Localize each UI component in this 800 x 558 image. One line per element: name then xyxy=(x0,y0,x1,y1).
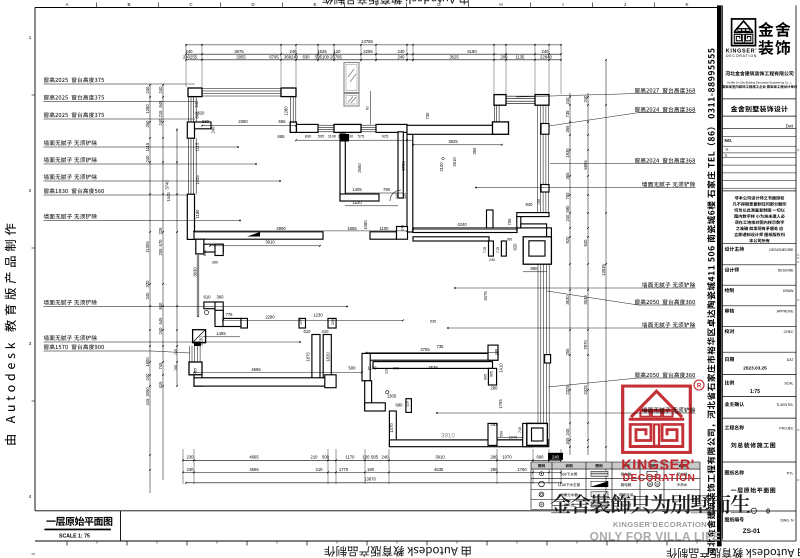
svg-text:Ho.Bei Jin She Building Decora: Ho.Bei Jin She Building Decoration Engin… xyxy=(727,80,792,84)
svg-text:1280: 1280 xyxy=(284,106,289,116)
svg-text:SCAL: SCAL xyxy=(784,382,793,386)
svg-text:13535: 13535 xyxy=(601,264,606,276)
svg-text:260: 260 xyxy=(145,120,150,128)
svg-text:100: 100 xyxy=(363,455,371,460)
svg-text:565: 565 xyxy=(371,455,379,460)
svg-text:20795: 20795 xyxy=(330,55,342,60)
svg-text:210: 210 xyxy=(311,455,319,460)
svg-text:230: 230 xyxy=(187,467,195,472)
svg-text:240: 240 xyxy=(583,95,588,103)
svg-text:TITL: TITL xyxy=(786,471,793,475)
svg-text:2660: 2660 xyxy=(357,163,362,173)
svg-text:1115: 1115 xyxy=(145,142,150,151)
svg-text:120: 120 xyxy=(406,401,410,407)
svg-text:1305: 1305 xyxy=(387,393,397,398)
svg-text:790: 790 xyxy=(383,187,391,192)
svg-text:240: 240 xyxy=(495,349,499,355)
svg-text:SCALE 1: 75: SCALE 1: 75 xyxy=(59,534,90,540)
svg-text:3625: 3625 xyxy=(449,55,459,60)
svg-text:845: 845 xyxy=(158,100,163,108)
svg-text:1855: 1855 xyxy=(347,226,357,231)
svg-text:1:75: 1:75 xyxy=(750,389,760,395)
svg-text:240: 240 xyxy=(552,454,560,459)
svg-text:3630: 3630 xyxy=(565,295,570,305)
svg-text:5180: 5180 xyxy=(467,49,477,54)
svg-text:13755: 13755 xyxy=(361,39,373,44)
svg-text:1525: 1525 xyxy=(317,49,327,54)
svg-text:245: 245 xyxy=(565,428,570,436)
svg-text:K: K xyxy=(685,2,688,7)
svg-text:1170: 1170 xyxy=(345,455,355,460)
svg-text:645: 645 xyxy=(158,317,163,325)
svg-text:240: 240 xyxy=(489,258,495,262)
svg-text:240: 240 xyxy=(145,155,150,163)
svg-text:11305: 11305 xyxy=(145,241,150,253)
svg-text:1765: 1765 xyxy=(498,399,503,409)
svg-text:1820: 1820 xyxy=(326,352,331,362)
svg-text:3675: 3675 xyxy=(234,49,244,54)
svg-text:2060: 2060 xyxy=(145,387,150,397)
svg-text:930: 930 xyxy=(507,237,513,241)
svg-text:750: 750 xyxy=(537,199,541,205)
svg-text:1935: 1935 xyxy=(565,148,570,158)
svg-text:765: 765 xyxy=(174,365,178,371)
svg-text:100: 100 xyxy=(393,367,399,371)
svg-text:1410: 1410 xyxy=(499,363,504,373)
svg-text:610: 610 xyxy=(304,329,312,334)
svg-text:610: 610 xyxy=(203,250,207,256)
svg-text:4240: 4240 xyxy=(457,222,467,227)
svg-text:240: 240 xyxy=(158,86,163,94)
svg-text:500: 500 xyxy=(349,366,357,371)
svg-text:255: 255 xyxy=(565,348,570,356)
svg-text:225: 225 xyxy=(158,227,163,235)
svg-text:365: 365 xyxy=(565,125,570,133)
svg-text:ZS-01: ZS-01 xyxy=(743,528,761,535)
svg-text:4665: 4665 xyxy=(251,367,261,372)
svg-text:655: 655 xyxy=(278,134,286,139)
svg-text:2325: 2325 xyxy=(583,385,588,395)
svg-text:920: 920 xyxy=(583,239,588,247)
svg-text:JL: JL xyxy=(725,148,729,152)
svg-text:205: 205 xyxy=(158,248,163,256)
svg-text:DRAW: DRAW xyxy=(783,289,794,293)
svg-text:850: 850 xyxy=(531,266,539,271)
svg-text:80: 80 xyxy=(366,106,370,110)
svg-text:410: 410 xyxy=(322,329,330,334)
svg-text:925: 925 xyxy=(382,134,389,139)
svg-text:Dwt: Dwt xyxy=(786,124,794,129)
svg-text:1445: 1445 xyxy=(166,192,171,202)
svg-text:4535: 4535 xyxy=(434,467,444,472)
svg-text:430: 430 xyxy=(347,134,354,139)
svg-text:3625: 3625 xyxy=(448,139,458,144)
svg-text:706: 706 xyxy=(507,218,512,226)
svg-text:240: 240 xyxy=(401,225,405,231)
svg-text:A: A xyxy=(65,2,68,7)
svg-text:240: 240 xyxy=(338,134,345,139)
svg-text:140: 140 xyxy=(395,193,399,199)
svg-text:1800: 1800 xyxy=(145,357,150,367)
svg-text:845: 845 xyxy=(195,111,200,119)
svg-text:905: 905 xyxy=(490,371,494,377)
svg-text:1760: 1760 xyxy=(517,467,527,472)
svg-text:3910: 3910 xyxy=(435,455,445,460)
svg-text:3630: 3630 xyxy=(583,295,588,305)
svg-text:405: 405 xyxy=(194,368,198,374)
svg-text:3910: 3910 xyxy=(441,432,455,439)
svg-text:230: 230 xyxy=(187,455,195,460)
svg-text:680: 680 xyxy=(396,402,404,407)
svg-text:830: 830 xyxy=(305,134,312,139)
svg-text:PROJEC: PROJEC xyxy=(779,426,794,430)
svg-text:595100: 595100 xyxy=(315,55,330,60)
svg-text:1115: 1115 xyxy=(195,142,200,151)
svg-text:415: 415 xyxy=(145,398,150,406)
svg-text:630: 630 xyxy=(202,119,210,124)
svg-text:200: 200 xyxy=(501,55,509,60)
svg-text:G: G xyxy=(437,2,441,7)
svg-text:1280: 1280 xyxy=(145,104,150,114)
svg-text:690: 690 xyxy=(565,205,570,213)
svg-text:1470: 1470 xyxy=(389,423,394,433)
svg-text:TL/IENTEL: TL/IENTEL xyxy=(776,403,793,407)
svg-text:DECORATION: DECORATION xyxy=(623,473,696,484)
svg-text:365: 365 xyxy=(565,172,570,180)
svg-text:4665: 4665 xyxy=(249,455,259,460)
svg-text:210: 210 xyxy=(316,467,324,472)
svg-text:360: 360 xyxy=(217,294,225,299)
svg-text:2280: 2280 xyxy=(265,314,275,319)
svg-text:KINGSER': KINGSER' xyxy=(621,458,695,474)
svg-text:1405: 1405 xyxy=(352,187,362,192)
svg-text:280: 280 xyxy=(491,385,499,390)
svg-text:13870: 13870 xyxy=(364,476,376,481)
svg-text:22840: 22840 xyxy=(540,55,552,60)
svg-text:120: 120 xyxy=(385,368,389,374)
svg-text:360: 360 xyxy=(212,261,218,265)
svg-text:2610: 2610 xyxy=(452,157,457,167)
svg-text:1875: 1875 xyxy=(306,352,311,362)
svg-text:DAT: DAT xyxy=(787,358,795,362)
svg-text:715: 715 xyxy=(496,247,500,253)
svg-text:4665: 4665 xyxy=(249,467,259,472)
svg-text:1230: 1230 xyxy=(313,313,323,318)
svg-text:1070: 1070 xyxy=(509,435,517,439)
svg-text:240: 240 xyxy=(398,49,406,54)
svg-text:920: 920 xyxy=(513,243,518,251)
svg-text:APPROVE: APPROVE xyxy=(777,310,795,314)
svg-text:180: 180 xyxy=(367,467,375,472)
svg-text:240: 240 xyxy=(382,455,390,460)
svg-text:DECORATION: DECORATION xyxy=(726,54,757,58)
svg-text:240255: 240255 xyxy=(183,55,198,60)
svg-text:J: J xyxy=(624,2,626,7)
svg-text:120: 120 xyxy=(299,319,303,325)
svg-text:365: 365 xyxy=(472,147,477,155)
svg-text:320: 320 xyxy=(145,280,150,288)
svg-text:4900: 4900 xyxy=(276,226,286,231)
svg-text:575: 575 xyxy=(358,134,365,139)
svg-text:7870: 7870 xyxy=(583,340,588,350)
svg-text:2295: 2295 xyxy=(363,49,373,54)
svg-text:3910: 3910 xyxy=(265,240,275,245)
svg-text:740: 740 xyxy=(518,427,522,433)
svg-text:240: 240 xyxy=(145,292,150,300)
svg-text:2130: 2130 xyxy=(199,336,204,346)
svg-text:735: 735 xyxy=(437,344,445,349)
svg-text:655: 655 xyxy=(279,119,287,124)
svg-text:280: 280 xyxy=(490,423,496,427)
svg-text:I: I xyxy=(562,2,563,7)
svg-text:1080: 1080 xyxy=(363,220,368,230)
svg-text:610: 610 xyxy=(204,294,212,299)
svg-text:240: 240 xyxy=(194,100,199,108)
svg-text:3630: 3630 xyxy=(193,267,198,277)
svg-text:240: 240 xyxy=(145,86,150,94)
svg-text:2390: 2390 xyxy=(238,119,248,124)
svg-text:1520: 1520 xyxy=(352,200,362,205)
svg-text:240: 240 xyxy=(145,373,150,381)
svg-text:730: 730 xyxy=(425,112,430,120)
svg-text:2023.03.25: 2023.03.25 xyxy=(743,365,767,370)
svg-text:1135: 1135 xyxy=(515,55,525,60)
svg-text:130: 130 xyxy=(331,319,335,325)
svg-text:CHEC: CHEC xyxy=(784,330,794,334)
svg-text:830: 830 xyxy=(303,55,311,60)
svg-text:6705: 6705 xyxy=(269,55,279,60)
svg-text:E.: E. xyxy=(725,154,728,158)
svg-text:2705: 2705 xyxy=(401,161,406,171)
svg-text:1445: 1445 xyxy=(195,175,200,185)
svg-text:1180: 1180 xyxy=(195,209,200,219)
svg-text:0: 0 xyxy=(766,507,770,516)
svg-text:1170: 1170 xyxy=(367,366,377,371)
svg-text:2325: 2325 xyxy=(565,385,570,395)
svg-text:DWG. N: DWG. N xyxy=(780,518,793,522)
svg-text:ONLY FOR VILLA LIFE.: ONLY FOR VILLA LIFE. xyxy=(590,530,725,544)
svg-text:670: 670 xyxy=(158,239,163,247)
svg-text:775: 775 xyxy=(226,312,234,317)
svg-text:215: 215 xyxy=(158,110,163,118)
svg-text:3475: 3475 xyxy=(483,291,488,301)
svg-text:120: 120 xyxy=(334,49,342,54)
svg-text:1070: 1070 xyxy=(502,455,512,460)
svg-text:2955: 2955 xyxy=(236,55,246,60)
svg-text:120: 120 xyxy=(403,193,407,199)
svg-text:840: 840 xyxy=(158,302,163,310)
svg-text:B: B xyxy=(127,2,130,7)
svg-text:690: 690 xyxy=(537,455,545,460)
svg-text:595: 595 xyxy=(318,134,325,139)
svg-text:6955: 6955 xyxy=(583,160,588,170)
svg-text:715: 715 xyxy=(483,247,487,253)
svg-text:805: 805 xyxy=(484,374,488,380)
svg-text:240: 240 xyxy=(186,49,194,54)
svg-text:240: 240 xyxy=(211,126,216,134)
svg-text:4535: 4535 xyxy=(428,365,438,370)
svg-text:KINGSER'DECORATION: KINGSER'DECORATION xyxy=(613,520,707,529)
svg-text:1455: 1455 xyxy=(216,331,226,336)
svg-text:735: 735 xyxy=(565,110,570,118)
svg-text:DESIGNEDIRE: DESIGNEDIRE xyxy=(769,248,794,252)
svg-text:920: 920 xyxy=(565,236,570,244)
svg-text:240: 240 xyxy=(565,214,570,222)
svg-text:1100: 1100 xyxy=(328,134,337,139)
svg-text:500: 500 xyxy=(500,431,504,437)
svg-text:240: 240 xyxy=(398,55,406,60)
svg-text:2100: 2100 xyxy=(439,162,444,172)
svg-text:NO.: NO. xyxy=(725,138,733,143)
svg-text:H: H xyxy=(499,2,502,7)
svg-text:E: E xyxy=(313,2,316,7)
svg-text:415: 415 xyxy=(158,381,163,389)
svg-text:500: 500 xyxy=(322,455,330,460)
svg-text:1770: 1770 xyxy=(339,467,349,472)
svg-text:940: 940 xyxy=(526,202,534,207)
svg-text:4755: 4755 xyxy=(420,347,430,352)
svg-text:535: 535 xyxy=(430,319,436,323)
svg-text:R: R xyxy=(697,384,702,390)
svg-text:240: 240 xyxy=(542,49,550,54)
svg-text:DESIGNE: DESIGNE xyxy=(778,269,794,273)
svg-text:1100: 1100 xyxy=(379,226,389,231)
